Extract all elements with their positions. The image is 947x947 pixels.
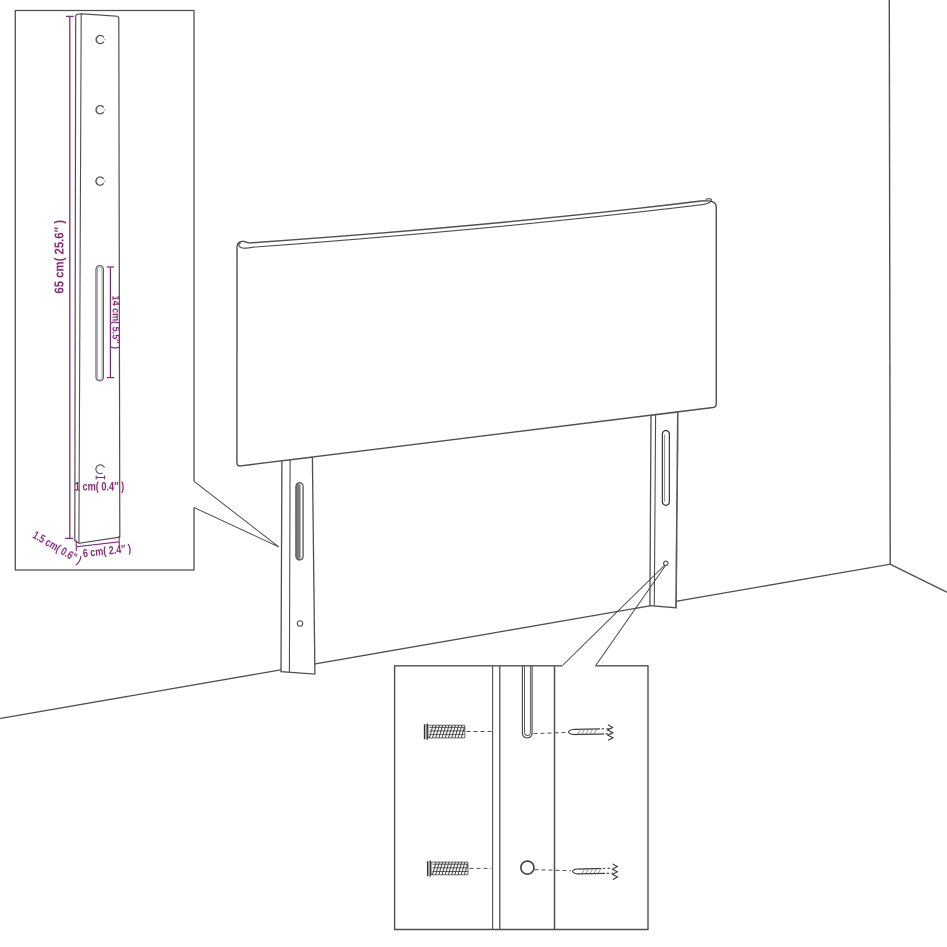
svg-text:65 cm( 25.6″ ): 65 cm( 25.6″ ) <box>51 220 66 294</box>
svg-text:14 cm( 5.5″ ): 14 cm( 5.5″ ) <box>109 296 120 350</box>
svg-text:1 cm( 0.4″ ): 1 cm( 0.4″ ) <box>75 480 124 494</box>
